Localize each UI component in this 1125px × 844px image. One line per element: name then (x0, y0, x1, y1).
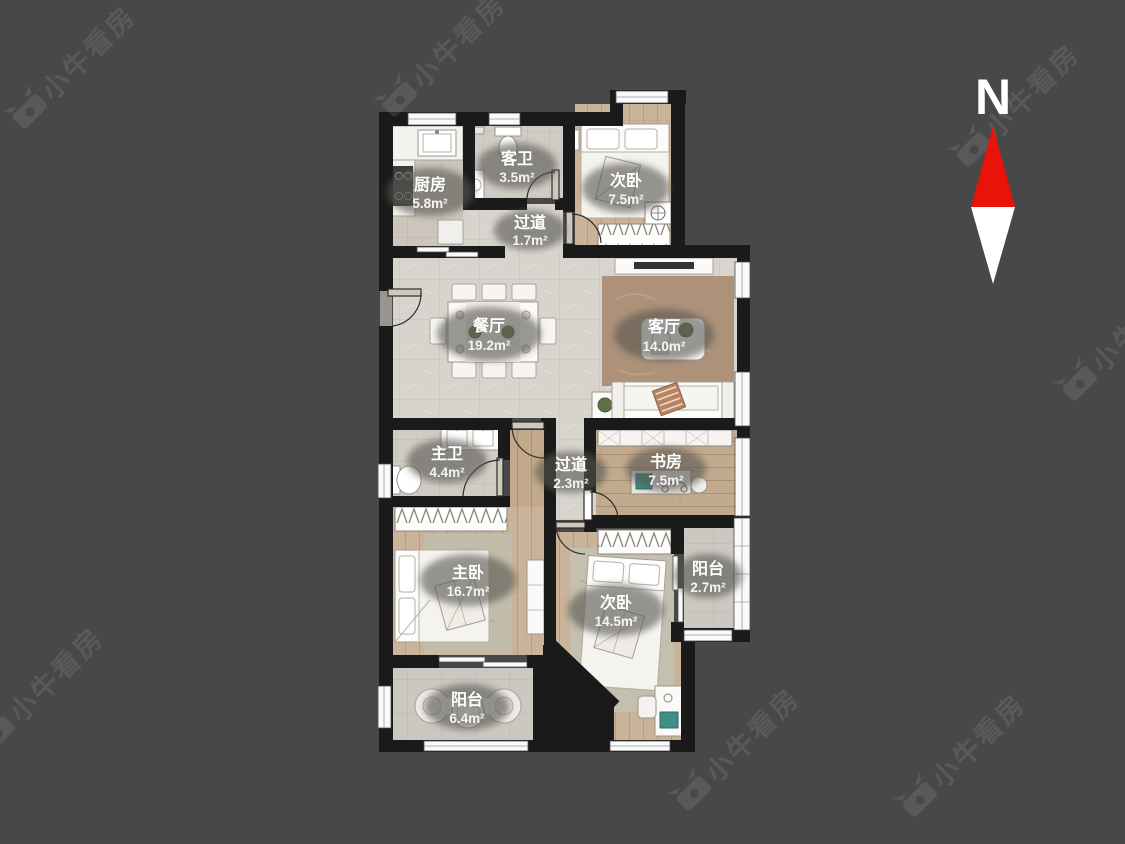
svg-text:餐厅: 餐厅 (472, 316, 505, 335)
room-label-guest-bath: 客卫 3.5m² (477, 143, 557, 189)
window (735, 372, 750, 426)
svg-text:厨房: 厨房 (414, 175, 446, 194)
room-label-study: 书房 7.5m² (626, 447, 706, 491)
svg-text:小牛看房: 小牛看房 (1086, 272, 1125, 378)
compass: N (971, 69, 1015, 284)
room-label-living: 客厅 14.0m² (614, 309, 714, 361)
svg-text:14.0m²: 14.0m² (643, 339, 686, 354)
room-label-balcony-south: 阳台 6.4m² (425, 684, 509, 730)
svg-text:次卧: 次卧 (600, 593, 632, 612)
room-label-dining: 餐厅 19.2m² (437, 307, 541, 361)
room-label-bedroom-north: 次卧 7.5m² (582, 163, 670, 213)
svg-text:客卫: 客卫 (501, 149, 533, 168)
watermark: 小牛看房 (0, 619, 110, 758)
svg-text:小牛看房: 小牛看房 (406, 0, 512, 94)
room-label-hallway-south: 过道 2.3m² (535, 451, 607, 493)
compass-north-label: N (975, 69, 1011, 125)
room-label-kitchen: 厨房 5.8m² (386, 168, 474, 216)
window (378, 464, 391, 498)
room-label-balcony-east: 阳台 2.7m² (674, 554, 742, 598)
room-label-master-bath: 主卫 4.4m² (407, 439, 487, 483)
svg-text:7.5m²: 7.5m² (648, 473, 684, 488)
svg-text:16.7m²: 16.7m² (447, 584, 490, 599)
window (684, 630, 732, 641)
svg-text:过道: 过道 (555, 455, 587, 474)
watermark: 小牛看房 (373, 0, 512, 124)
room-label-hallway-north: 过道 1.7m² (494, 210, 566, 250)
svg-text:小牛看房: 小牛看房 (36, 0, 142, 106)
svg-text:3.5m²: 3.5m² (499, 170, 535, 185)
svg-text:5.8m²: 5.8m² (412, 196, 448, 211)
svg-text:6.4m²: 6.4m² (449, 711, 485, 726)
wardrobe (395, 507, 507, 531)
wardrobe (598, 530, 671, 554)
compass-needle-south (971, 207, 1015, 284)
room-label-bedroom-south: 次卧 14.5m² (568, 584, 664, 636)
svg-text:客厅: 客厅 (648, 317, 680, 336)
svg-text:2.3m²: 2.3m² (553, 476, 589, 491)
svg-text:19.2m²: 19.2m² (468, 338, 511, 353)
watermark: 小牛看房 (893, 685, 1032, 824)
svg-text:书房: 书房 (650, 452, 682, 471)
window (735, 438, 750, 516)
floor-plan-image: 厨房 5.8m² 客卫 3.5m² 次卧 7.5m² 过道 1.7m² 餐厅 1… (0, 0, 1125, 844)
watermark: 小牛看房 (3, 0, 142, 136)
closet-strip (598, 430, 732, 446)
svg-text:7.5m²: 7.5m² (608, 192, 644, 207)
sofa (612, 382, 734, 420)
window (378, 686, 391, 728)
floor-plan-page: 厨房 5.8m² 客卫 3.5m² 次卧 7.5m² 过道 1.7m² 餐厅 1… (0, 0, 1125, 844)
svg-text:小牛看房: 小牛看房 (926, 688, 1032, 794)
watermark: 小牛看房 (947, 35, 1086, 174)
tv (634, 262, 694, 269)
svg-text:阳台: 阳台 (451, 690, 483, 709)
svg-text:小牛看房: 小牛看房 (4, 622, 110, 728)
svg-text:主卧: 主卧 (452, 563, 484, 582)
room-label-master-bedroom: 主卧 16.7m² (420, 554, 516, 606)
svg-text:次卧: 次卧 (610, 171, 642, 190)
svg-text:阳台: 阳台 (692, 559, 724, 578)
svg-text:4.4m²: 4.4m² (429, 465, 465, 480)
watermark: 小牛看房 (1053, 269, 1125, 408)
svg-text:过道: 过道 (514, 213, 546, 232)
window (735, 262, 750, 298)
svg-text:主卫: 主卫 (431, 444, 463, 463)
svg-text:1.7m²: 1.7m² (512, 233, 548, 248)
chair (638, 696, 656, 718)
svg-text:小牛看房: 小牛看房 (700, 682, 806, 788)
svg-text:2.7m²: 2.7m² (690, 580, 726, 595)
svg-text:14.5m²: 14.5m² (595, 614, 638, 629)
cabinet (527, 560, 544, 634)
